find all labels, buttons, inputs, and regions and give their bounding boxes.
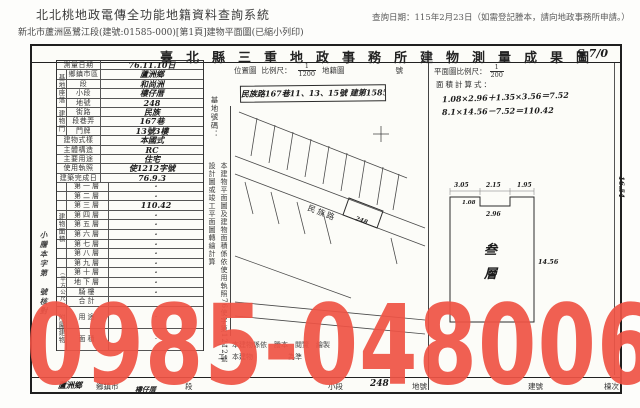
field-row: 街路民族 <box>57 108 203 117</box>
page-mark: S 7/0 <box>577 47 608 60</box>
field-row: 小段樓仔厝 <box>57 89 203 98</box>
floor-row: 第七層· <box>57 240 203 250</box>
field-row: 建物式樣本國式 <box>57 136 203 145</box>
field-value: 167巷 <box>101 117 203 125</box>
floor-label-char-1: 叁 <box>484 242 499 258</box>
floor-label: 第九層 <box>67 259 109 268</box>
floor-value: · <box>109 211 203 220</box>
floor-value: · <box>109 268 203 277</box>
floor-row: 第五層· <box>57 220 203 230</box>
field-label: 使用執照 <box>57 164 101 172</box>
field-label: 小段 <box>67 89 101 97</box>
field-label: 主要用途 <box>57 155 101 163</box>
location-map-label: 位置圖 <box>234 65 257 76</box>
document-line: 新北市蘆洲區鷺江段(建號:01585-000)[第1頁]建物平面圖(已縮小列印) <box>18 25 304 38</box>
field-value: 樓仔厝 <box>101 89 203 97</box>
field-value: 蘆洲鄉 <box>101 70 203 78</box>
field-row: 主體構造RC <box>57 146 203 155</box>
field-label: 建築完成日期 <box>57 174 101 182</box>
plan-scale-label: 平面圖比例尺： <box>434 66 487 77</box>
floor-value: · <box>109 192 203 201</box>
floor-label: 第七層 <box>67 240 109 249</box>
field-label: 主體構造 <box>57 146 101 154</box>
floor-row: 第八層· <box>57 249 203 259</box>
floor-label-char-2: 層 <box>483 267 499 282</box>
handwritten-annotation: 民族路167巷11、13、15號 建第1585 <box>241 85 385 101</box>
map-scale-fraction: 11200 <box>298 63 317 77</box>
floor-value: · <box>109 182 203 191</box>
sheet-no-label: 號 <box>396 65 404 76</box>
field-label: 段巷弄 <box>67 117 101 125</box>
map-caption: 位置圖 比例尺： 11200 地籍圖 號 <box>234 63 403 77</box>
watermark: 0985-048006 <box>26 290 640 401</box>
field-row: 測量日期76.11.10日 <box>57 61 203 70</box>
floor-value: · <box>109 249 203 258</box>
dim-top-left: 3.05 <box>454 182 469 189</box>
floor-label: 第四層 <box>67 211 109 220</box>
query-date: 查詢日期：115年2月23日（如需登記謄本，請向地政事務所申請。） <box>372 11 630 23</box>
field-value: 民族 <box>101 108 203 116</box>
floor-label: 第一層 <box>67 182 109 191</box>
field-value: 和尚洲 <box>101 80 203 88</box>
field-label: 建物式樣 <box>57 136 101 144</box>
floor-row: 第十層· <box>57 268 203 278</box>
floor-row: 第四層· <box>57 211 203 221</box>
floor-row: 第三層110.42 <box>57 201 203 211</box>
floor-label: 第十層 <box>67 268 109 277</box>
field-label: 鄉鎮市區 <box>67 70 101 78</box>
field-value: 13號3樓 <box>101 127 203 135</box>
field-label: 地號 <box>67 99 101 107</box>
field-label: 測量日期 <box>57 61 101 69</box>
floor-label: 第五層 <box>67 220 109 229</box>
floor-group-label: 建物面積 <box>56 186 66 270</box>
field-value: 76.11.10日 <box>101 61 203 69</box>
field-label: 街路 <box>67 108 101 116</box>
field-label: 門牌 <box>67 127 101 135</box>
area-calc-line-2: 8.1×14.56－7.52＝110.42 <box>442 105 554 118</box>
dim-top-mid: 2.15 <box>485 182 501 189</box>
dim-right-side: 14.56 <box>538 258 559 266</box>
dim-notch-height: 1.08 <box>462 200 476 206</box>
screen: 北北桃地政電傳全功能地籍資料查詢系統 查詢日期：115年2月23日（如需登記謄本… <box>0 0 640 408</box>
field-value: 使1212字號 <box>101 164 203 172</box>
field-row: 鄉鎮市區蘆洲鄉 <box>57 70 203 79</box>
floor-label: 第六層 <box>67 230 109 239</box>
field-value: RC <box>101 146 203 154</box>
system-title: 北北桃地政電傳全功能地籍資料查詢系統 <box>36 6 270 23</box>
floor-label: 第八層 <box>67 249 109 258</box>
floor-label: 第二層 <box>67 192 109 201</box>
field-value: 本國式 <box>101 136 203 144</box>
field-row: 門牌13號3樓 <box>57 127 203 136</box>
area-calc-line-1: 1.08×2.96＋1.35×3.56＝7.52 <box>442 90 569 105</box>
field-row: 地號248 <box>57 99 203 108</box>
dim-top-right: 1.95 <box>517 182 532 189</box>
floor-row: 第二層· <box>57 192 203 202</box>
site-group-label: 基地座落 <box>56 70 66 107</box>
floor-row: 第一層· <box>57 182 203 192</box>
field-row: 使用執照使1212字號 <box>57 164 203 173</box>
field-table: 測量日期76.11.10日 鄉鎮市區蘆洲鄉 段和尚洲 小段樓仔厝 地號248 街… <box>56 60 204 183</box>
field-value: 住宅 <box>101 155 203 163</box>
field-row: 段巷弄167巷 <box>57 117 203 126</box>
field-label: 段 <box>67 80 101 88</box>
floor-row: 第六層· <box>57 230 203 240</box>
plan-scale-fraction: 1200 <box>490 64 504 78</box>
field-value: 76.9.3 <box>101 174 203 182</box>
floor-label: 第三層 <box>67 201 109 210</box>
field-row: 主要用途住宅 <box>57 155 203 164</box>
subject-lot-number: 248 <box>353 215 369 226</box>
field-value: 248 <box>101 99 203 107</box>
floor-value: · <box>109 240 203 249</box>
road-label: 民族路 <box>306 203 338 223</box>
area-calc-label: 面積計算式： <box>436 79 493 90</box>
floor-row: 第九層· <box>57 259 203 269</box>
dim-notch-width: 2.96 <box>485 211 501 218</box>
cadastral-sheet-label: 地籍圖 <box>322 65 345 76</box>
floor-value: · <box>109 259 203 268</box>
field-row: 段和尚洲 <box>57 80 203 89</box>
scale-label: 比例尺： <box>262 65 292 76</box>
margin-measure-note: 16.54 <box>617 176 626 198</box>
floor-value: · <box>109 230 203 239</box>
site-number-note: 基地號碼： <box>209 96 220 160</box>
door-group-label: 建物門牌 <box>56 107 66 135</box>
floor-value: 110.42 <box>109 201 203 210</box>
handwritten-annotation-box: 民族路167巷11、13、15號 建第1585 <box>240 84 386 103</box>
floor-value: · <box>109 220 203 229</box>
plan-caption: 平面圖比例尺： 1200 <box>434 64 505 78</box>
